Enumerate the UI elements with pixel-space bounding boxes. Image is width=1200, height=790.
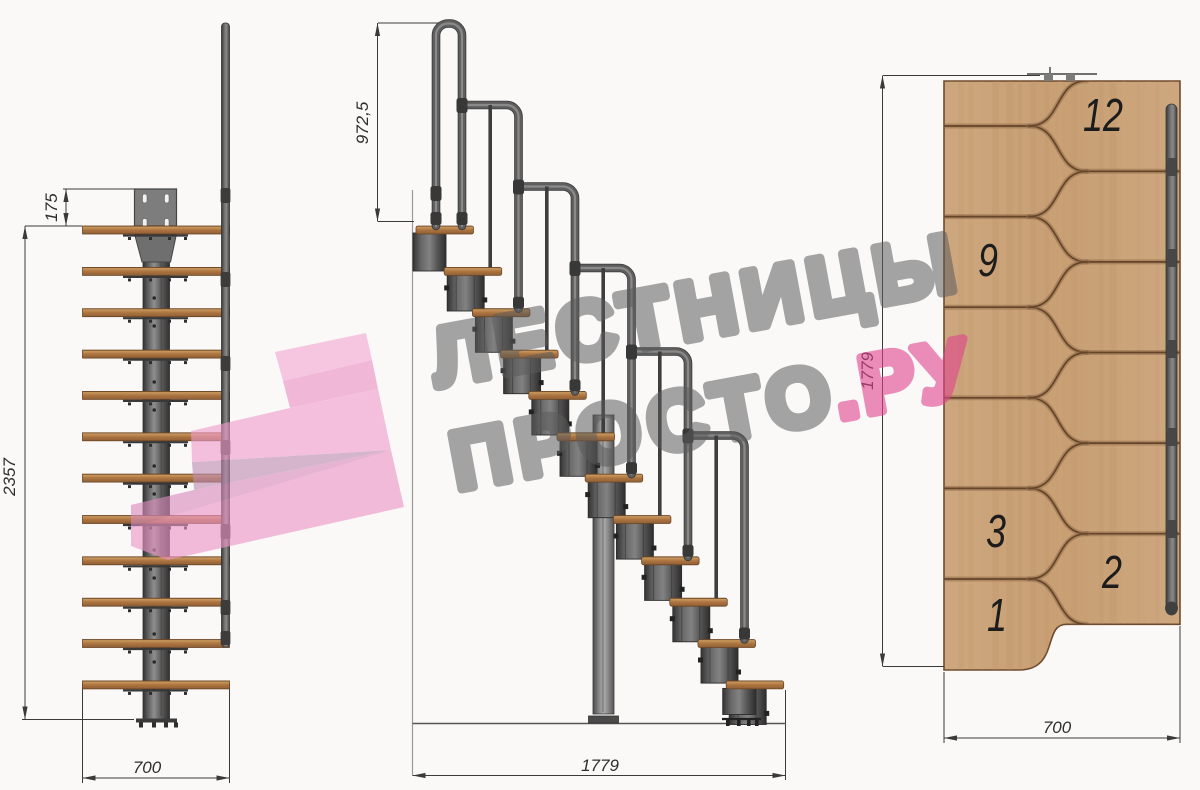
svg-text:2: 2 <box>1101 547 1122 598</box>
svg-text:3: 3 <box>986 506 1006 557</box>
svg-text:1779: 1779 <box>581 756 619 775</box>
svg-text:9: 9 <box>978 235 998 286</box>
svg-text:972,5: 972,5 <box>353 101 372 144</box>
svg-text:175: 175 <box>42 193 61 222</box>
svg-text:2357: 2357 <box>0 458 19 497</box>
svg-text:1: 1 <box>987 590 1007 641</box>
svg-text:700: 700 <box>1043 718 1072 737</box>
svg-text:12: 12 <box>1083 90 1123 141</box>
svg-text:700: 700 <box>133 758 162 777</box>
